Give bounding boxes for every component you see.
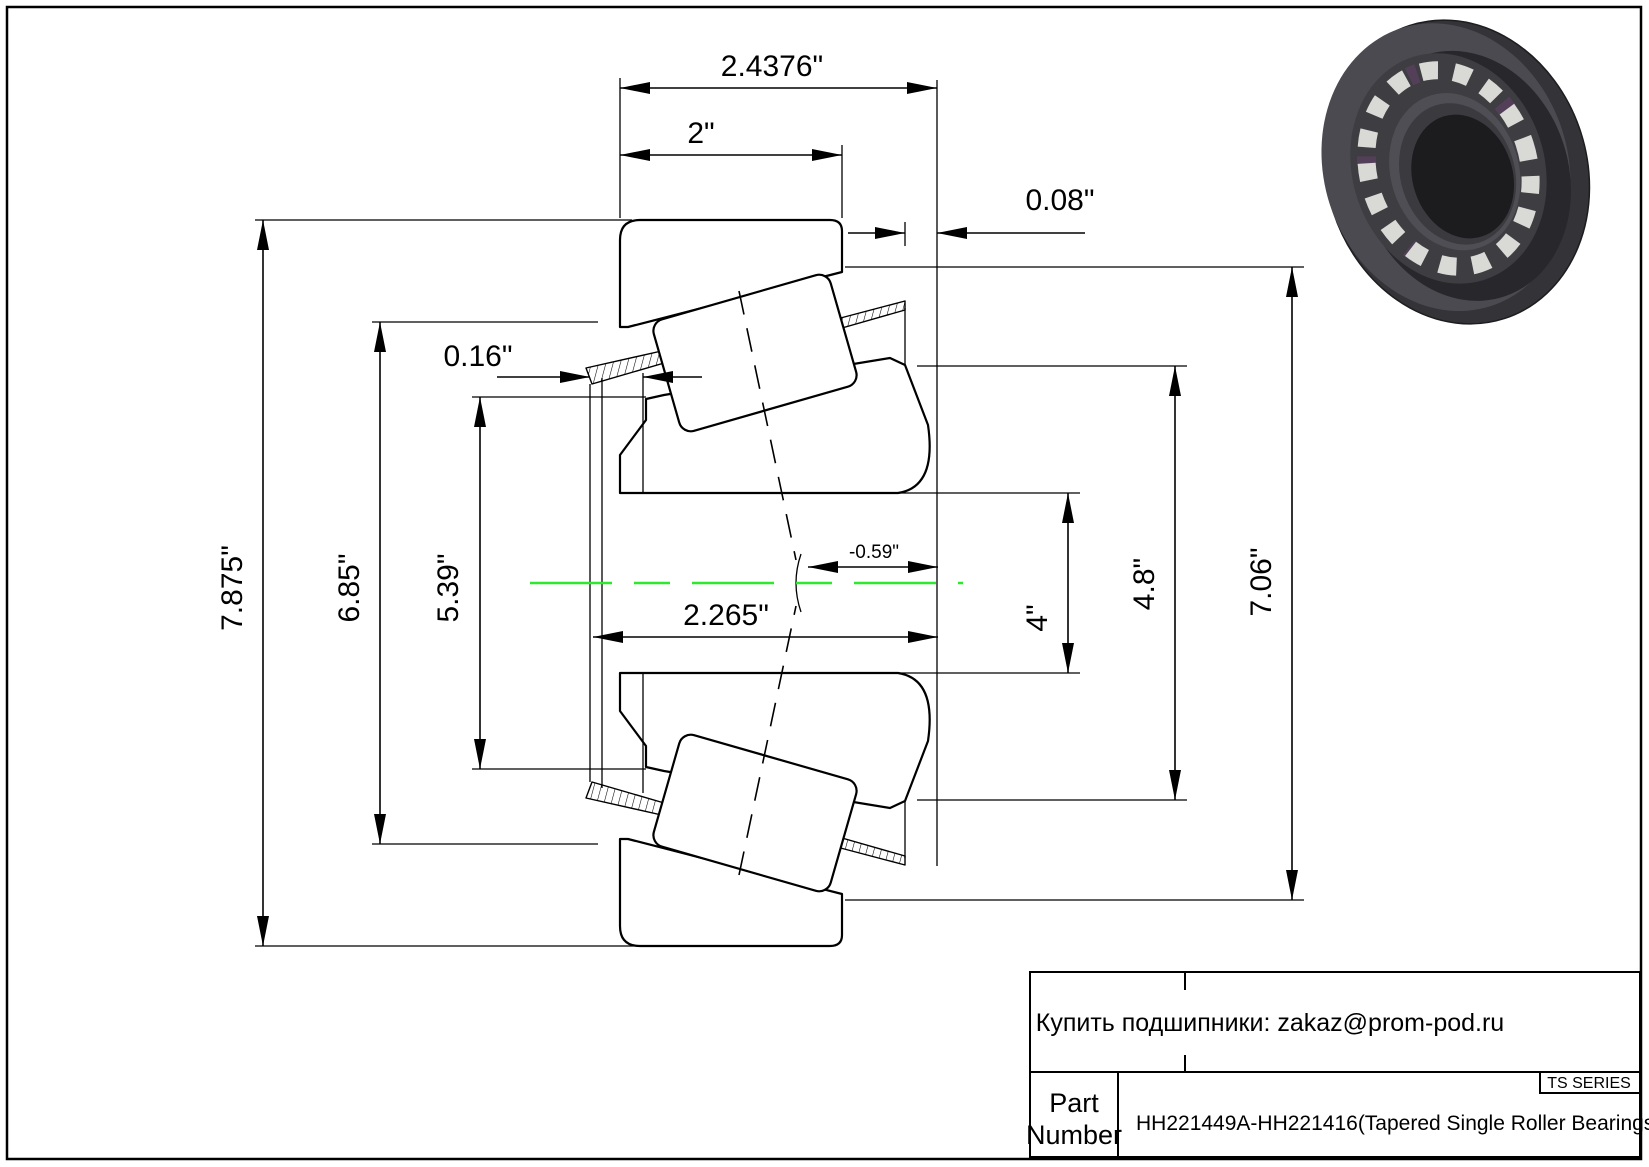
dim-label-cup-width: 2" [687,117,714,150]
part-label-line1: Part [1049,1088,1099,1118]
dim-label-cone-width: 2.265" [683,599,769,632]
dim-label-effective-center: -0.59" [849,542,899,563]
cage-lip-bottom-left [586,782,671,816]
dimension-rib-diameter: 5.39" [432,397,480,769]
dim-label-cone-back-rib: 4.8" [1128,558,1161,610]
bearing-3d-render [1285,0,1628,359]
part-label-line2: Number [1026,1120,1122,1150]
roller-top [651,272,860,434]
bearing-cross-section [586,80,1080,946]
part-number-text: HH221449A-HH221416(Tapered Single Roller… [1136,1112,1649,1135]
dim-label-cage-front-diameter: 6.85" [333,553,366,622]
series-label: TS SERIES [1547,1075,1631,1092]
contact-text: Купить подшипники: zakaz@prom-pod.ru [1036,1009,1504,1037]
title-block: Купить подшипники: zakaz@prom-pod.ru TS … [1026,972,1649,1157]
dimension-bore-diameter: 4" [1021,493,1068,673]
cage-lip-top-left [586,350,671,384]
dimension-effective-center: -0.59" [808,542,938,567]
drawing-canvas: 2.4376" 2" 0.08" 0.16" -0.59" 2.265" [0,0,1649,1167]
roller-bottom [651,732,860,894]
dim-label-cage-protrusion: 0.08" [1025,184,1094,217]
dimension-cage-protrusion: 0.08" [848,184,1095,233]
dim-label-cage-back-diameter: 7.06" [1245,547,1278,616]
dimension-cone-width: 2.265" [593,599,938,637]
dim-label-outer-diameter: 7.875" [216,545,249,631]
dimension-cup-width: 2" [620,117,842,155]
dim-label-overall-width: 2.4376" [721,50,823,83]
dim-label-rib-diameter: 5.39" [432,553,465,622]
dimension-overall-width: 2.4376" [620,50,937,88]
dim-label-lip-protrusion: 0.16" [443,340,512,373]
drawing-page: 2.4376" 2" 0.08" 0.16" -0.59" 2.265" [0,0,1649,1167]
dimension-outer-diameter: 7.875" [216,220,263,946]
dimension-cage-front-diameter: 6.85" [333,322,380,844]
dimension-cage-back-diameter: 7.06" [1245,267,1292,900]
dimension-cone-back-rib: 4.8" [1128,366,1175,800]
dim-label-bore-diameter: 4" [1021,604,1054,631]
